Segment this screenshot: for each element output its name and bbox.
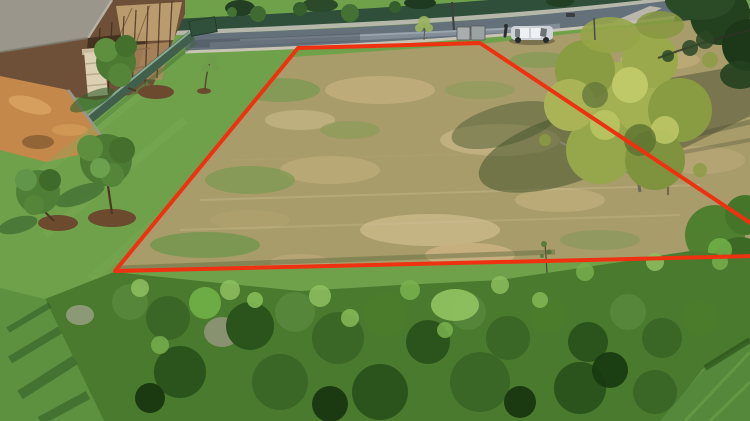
distant-car bbox=[566, 13, 575, 17]
rear-window bbox=[515, 29, 520, 37]
utility-box bbox=[471, 26, 485, 40]
windshield bbox=[540, 28, 547, 37]
mulch-ring bbox=[38, 215, 78, 231]
parked-car bbox=[509, 26, 555, 45]
mulch-ring bbox=[138, 85, 174, 99]
mulch-ring bbox=[197, 88, 211, 94]
screenshot bbox=[0, 0, 750, 421]
wheel bbox=[515, 37, 521, 43]
wheel bbox=[543, 37, 549, 43]
sand-pit bbox=[22, 135, 54, 149]
sign-pole bbox=[594, 18, 595, 40]
aerial-photo bbox=[0, 0, 750, 421]
utility-box bbox=[457, 27, 470, 40]
